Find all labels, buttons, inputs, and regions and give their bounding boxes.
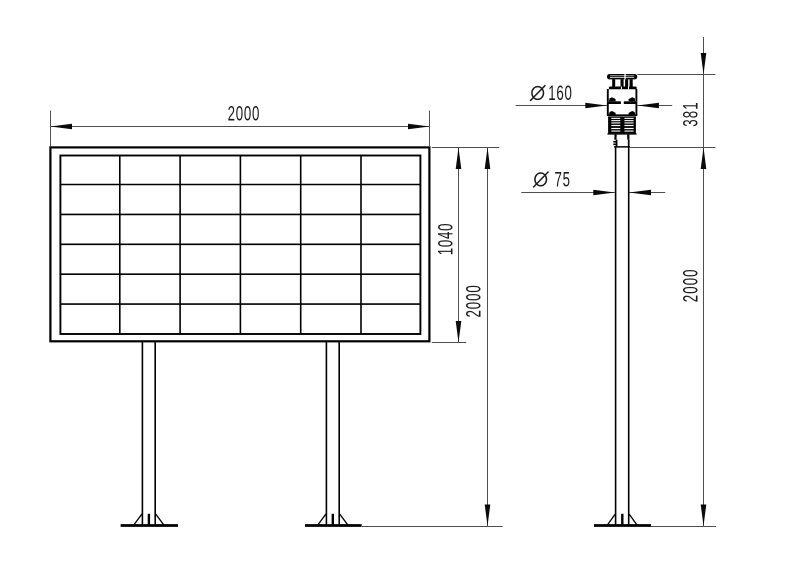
- svg-text:2000: 2000: [228, 101, 260, 125]
- svg-text:160: 160: [548, 81, 572, 105]
- svg-text:2000: 2000: [461, 284, 485, 317]
- svg-text:2000: 2000: [678, 268, 702, 302]
- svg-text:1040: 1040: [433, 223, 457, 255]
- svg-text:75: 75: [554, 167, 570, 191]
- svg-text:381: 381: [678, 101, 702, 126]
